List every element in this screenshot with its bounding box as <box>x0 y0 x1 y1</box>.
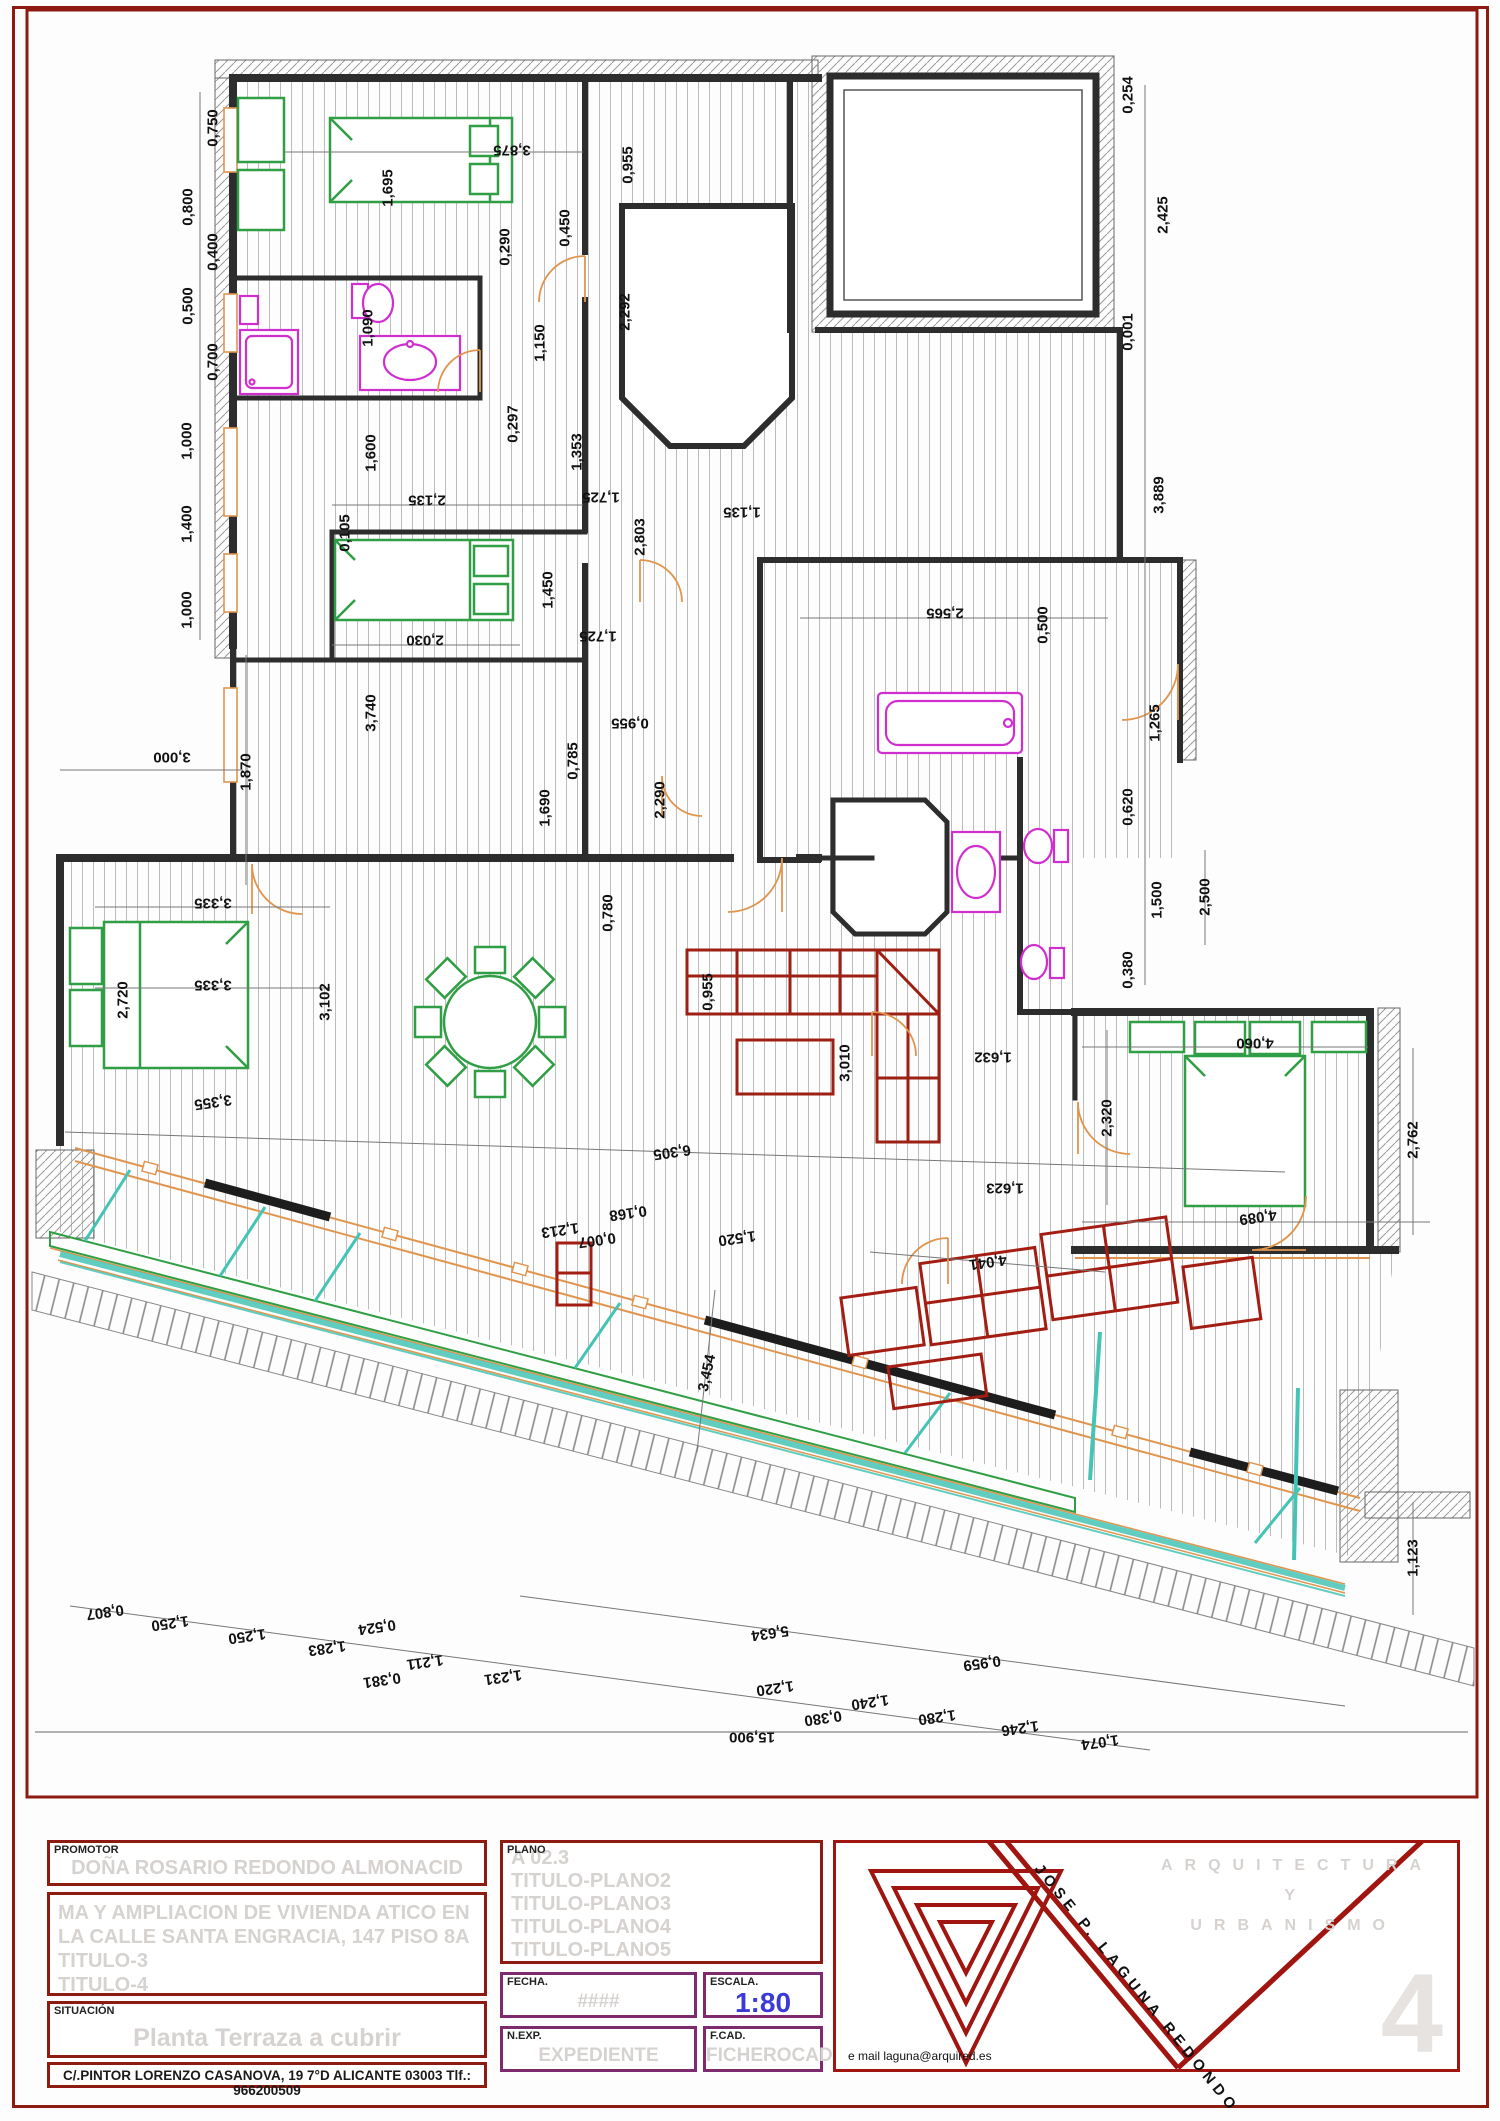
fecha-label: FECHA. <box>507 1976 548 1988</box>
firm-line-3: URBANISMO <box>1190 1917 1397 1935</box>
escala-box: ESCALA. 1:80 <box>703 1972 823 2018</box>
text-line: TITULO-PLANO4 <box>511 1916 820 1939</box>
fcad-label: F.CAD. <box>710 2030 745 2042</box>
fcad-box: F.CAD. FICHEROCAD <box>703 2026 823 2072</box>
architect-logo-box: JOSE P. LAGUNA REDONDO ARQUITECTURA Y UR… <box>833 1840 1460 2072</box>
text-line: MA Y AMPLIACION DE VIVIENDA ATICO EN <box>58 1901 484 1925</box>
nested-triangles-icon <box>871 1871 1061 2063</box>
bath-cabinet <box>240 296 258 324</box>
fecha-box: FECHA. #### <box>500 1972 697 2018</box>
escala-label: ESCALA. <box>710 1976 758 1988</box>
escala-value: 1:80 <box>706 1987 820 2019</box>
promotor-value: DOÑA ROSARIO REDONDO ALMONACID <box>50 1857 484 1880</box>
promotor-label: PROMOTOR <box>54 1844 119 1856</box>
sink-1 <box>360 336 460 390</box>
plano-label: PLANO <box>507 1844 546 1856</box>
email-text: e mail laguna@arquired.es <box>848 2049 992 2063</box>
shower-tray <box>240 330 298 394</box>
bathtub <box>878 693 1022 753</box>
sheet-number: 4 <box>1381 1961 1443 2067</box>
project-description: MA Y AMPLIACION DE VIVIENDA ATICO ENLA C… <box>58 1901 484 1997</box>
text-line: TITULO-4 <box>58 1973 484 1997</box>
plano-box: PLANO A 02.3TITULO-PLANO2TITULO-PLANO3TI… <box>500 1840 823 1964</box>
text-line: A 02.3 <box>511 1847 820 1870</box>
fcad-value: FICHEROCAD <box>706 2045 820 2067</box>
situacion-label: SITUACIÓN <box>54 2005 115 2017</box>
firm-line-2: Y <box>1284 1887 1307 1905</box>
dining-table <box>415 947 565 1097</box>
text-line: LA CALLE SANTA ENGRACIA, 147 PISO 8A <box>58 1925 484 1949</box>
fecha-value: #### <box>503 1991 694 2013</box>
address-text: C/.PINTOR LORENZO CASANOVA, 19 7°D ALICA… <box>50 2068 484 2098</box>
bay-room <box>622 206 792 446</box>
address-box: C/.PINTOR LORENZO CASANOVA, 19 7°D ALICA… <box>47 2062 487 2088</box>
nexp-label: N.EXP. <box>507 2030 542 2042</box>
toilet-1 <box>352 284 393 322</box>
project-box: MA Y AMPLIACION DE VIVIENDA ATICO ENLA C… <box>47 1892 487 1996</box>
drawing-sheet: 0,7500,8000,4000,5000,7001,0001,4001,000… <box>0 0 1500 2121</box>
bed-middle-left <box>335 540 513 620</box>
logo-graphics <box>836 1843 1463 2075</box>
floor-plan-drawing <box>0 0 1500 1800</box>
nexp-box: N.EXP. EXPEDIENTE <box>500 2026 697 2072</box>
situacion-value: Planta Terraza a cubrir <box>50 2024 484 2053</box>
firm-line-1: ARQUITECTURA <box>1161 1857 1433 1875</box>
bidet <box>1021 945 1064 979</box>
shower-enclosure <box>833 800 947 934</box>
text-line: TITULO-PLANO3 <box>511 1893 820 1916</box>
text-line: TITULO-3 <box>58 1949 484 1973</box>
situacion-box: SITUACIÓN Planta Terraza a cubrir <box>47 2001 487 2058</box>
text-line: TITULO-PLANO2 <box>511 1870 820 1893</box>
bed-top-left <box>330 118 512 202</box>
nexp-value: EXPEDIENTE <box>503 2045 694 2067</box>
text-line: TITULO-PLANO5 <box>511 1939 820 1962</box>
sink-2 <box>952 832 1000 912</box>
bed-left-double <box>70 922 248 1068</box>
plano-lines: A 02.3TITULO-PLANO2TITULO-PLANO3TITULO-P… <box>511 1847 820 1962</box>
toilet-2 <box>1024 829 1068 863</box>
promotor-box: PROMOTOR DOÑA ROSARIO REDONDO ALMONACID <box>47 1840 487 1886</box>
